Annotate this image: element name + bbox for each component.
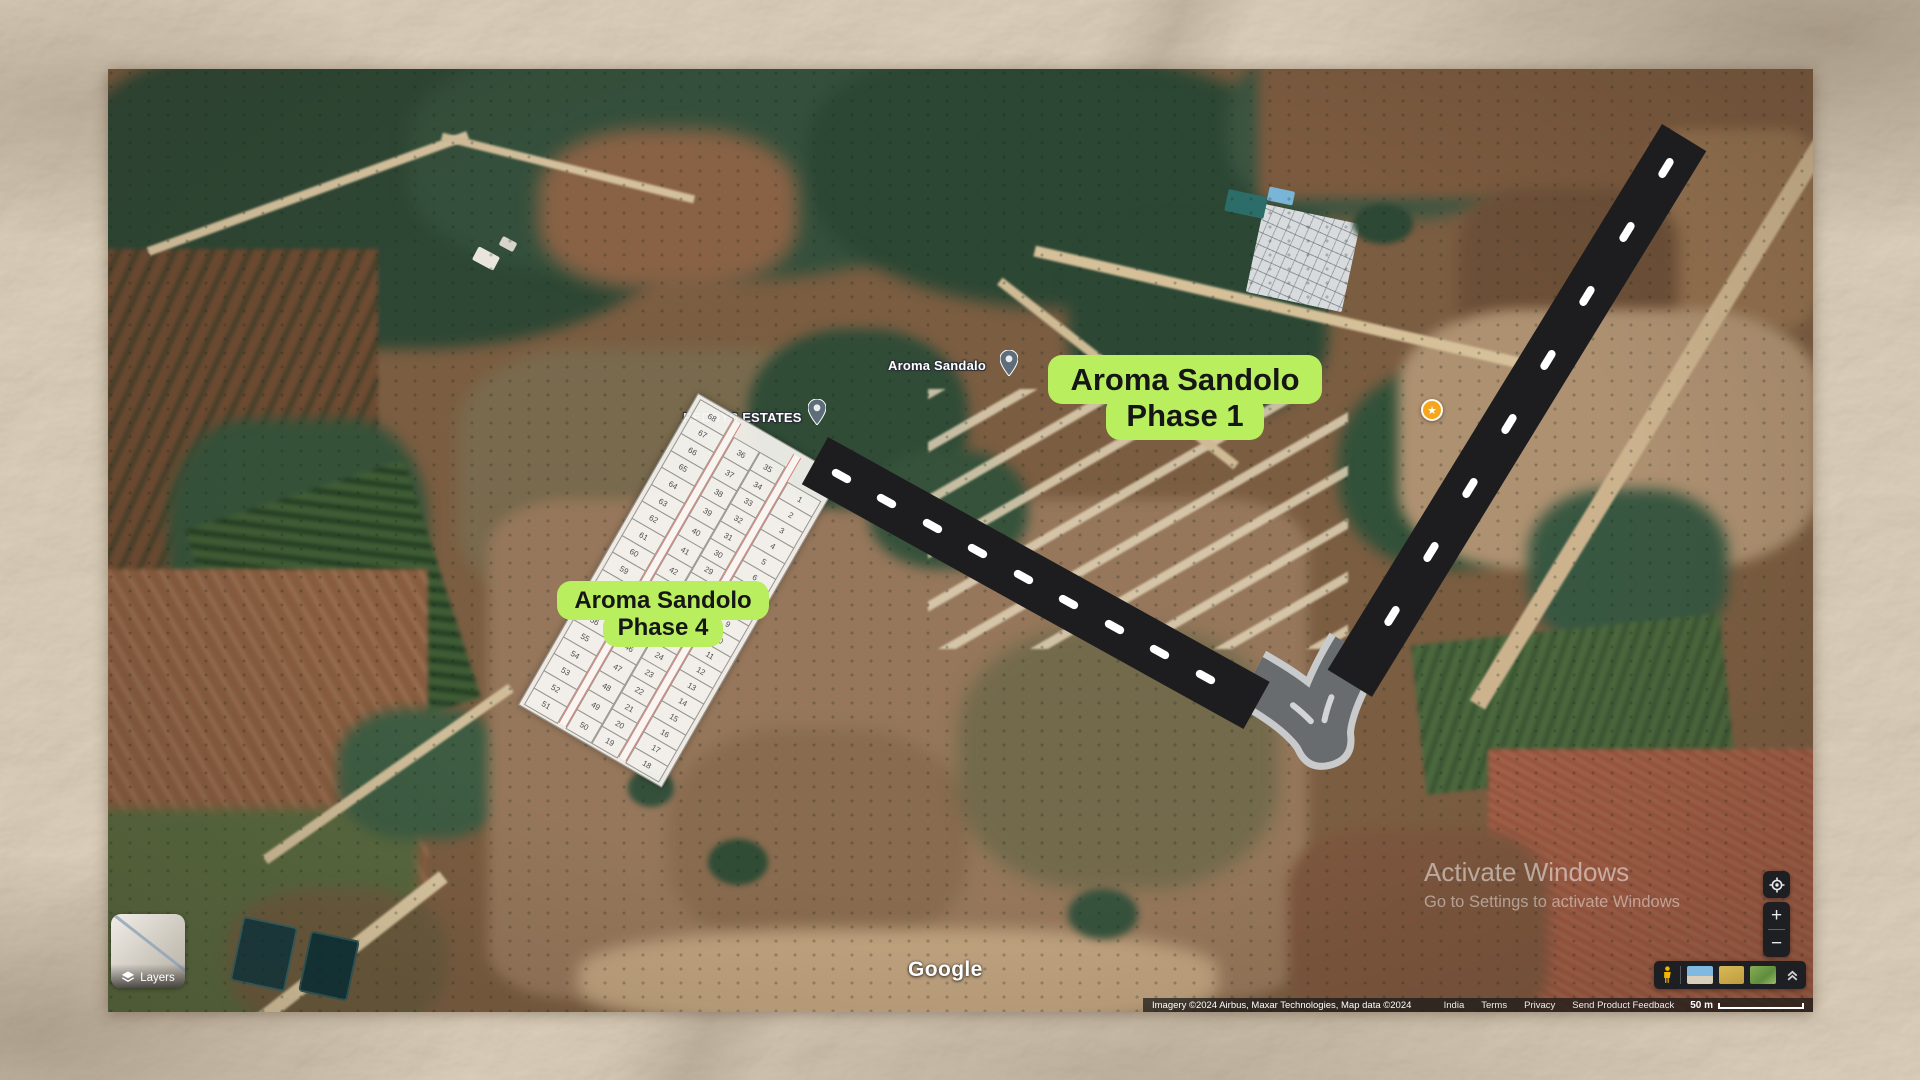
imagery-credit: Imagery ©2024 Airbus, Maxar Technologies… bbox=[1152, 1000, 1411, 1011]
expand-chevron-icon[interactable] bbox=[1786, 969, 1799, 982]
attribution-link[interactable]: Privacy bbox=[1524, 1000, 1555, 1011]
annotation-phase1: Aroma Sandolo Phase 1 bbox=[1060, 355, 1310, 440]
attribution-bar: Imagery ©2024 Airbus, Maxar Technologies… bbox=[1143, 998, 1813, 1012]
attribution-link[interactable]: Send Product Feedback bbox=[1572, 1000, 1674, 1011]
annotation-text: Phase 1 bbox=[1106, 396, 1263, 441]
my-location-icon bbox=[1769, 877, 1785, 893]
layers-button[interactable]: Layers bbox=[111, 914, 185, 988]
watermark-line2: Go to Settings to activate Windows bbox=[1424, 893, 1680, 912]
annotation-text: Phase 4 bbox=[603, 613, 724, 648]
layers-icon bbox=[121, 970, 135, 984]
scale-line bbox=[1718, 1003, 1804, 1009]
place-pin-icon[interactable] bbox=[808, 399, 826, 425]
zoom-control: + − bbox=[1763, 902, 1790, 957]
google-logo: Google bbox=[908, 958, 983, 982]
place-pin-icon[interactable] bbox=[1000, 350, 1018, 376]
star-marker[interactable]: ★ bbox=[1421, 399, 1443, 421]
annotation-phase4: Aroma Sandolo Phase 4 bbox=[563, 581, 763, 647]
my-location-button[interactable] bbox=[1763, 871, 1790, 898]
star-icon: ★ bbox=[1427, 404, 1437, 417]
imagery-thumbnail-streetview[interactable] bbox=[1687, 966, 1713, 984]
layers-label: Layers bbox=[140, 972, 175, 984]
imagery-thumbnail-map[interactable] bbox=[1750, 966, 1776, 984]
attribution-link[interactable]: India bbox=[1444, 1000, 1465, 1011]
imagery-thumbnail-terrain[interactable] bbox=[1719, 966, 1745, 984]
scale-bar: 50 m bbox=[1690, 1000, 1804, 1011]
place-label-aroma-sandalo[interactable]: Aroma Sandalo bbox=[888, 358, 986, 373]
zoom-out-button[interactable]: − bbox=[1763, 930, 1790, 957]
divider bbox=[1680, 966, 1681, 984]
pegman-icon[interactable] bbox=[1661, 966, 1674, 984]
zoom-in-button[interactable]: + bbox=[1763, 902, 1790, 929]
attribution-link[interactable]: Terms bbox=[1481, 1000, 1507, 1011]
windows-watermark: Activate Windows Go to Settings to activ… bbox=[1424, 857, 1680, 912]
attribution-links: IndiaTermsPrivacySend Product Feedback bbox=[1444, 1000, 1675, 1011]
pegman-bar bbox=[1654, 961, 1806, 989]
watermark-line1: Activate Windows bbox=[1424, 857, 1680, 888]
scale-label: 50 m bbox=[1690, 1000, 1713, 1011]
map-canvas[interactable]: Aroma Sandalo REDDYS ESTATES 68676665646… bbox=[108, 69, 1813, 1012]
